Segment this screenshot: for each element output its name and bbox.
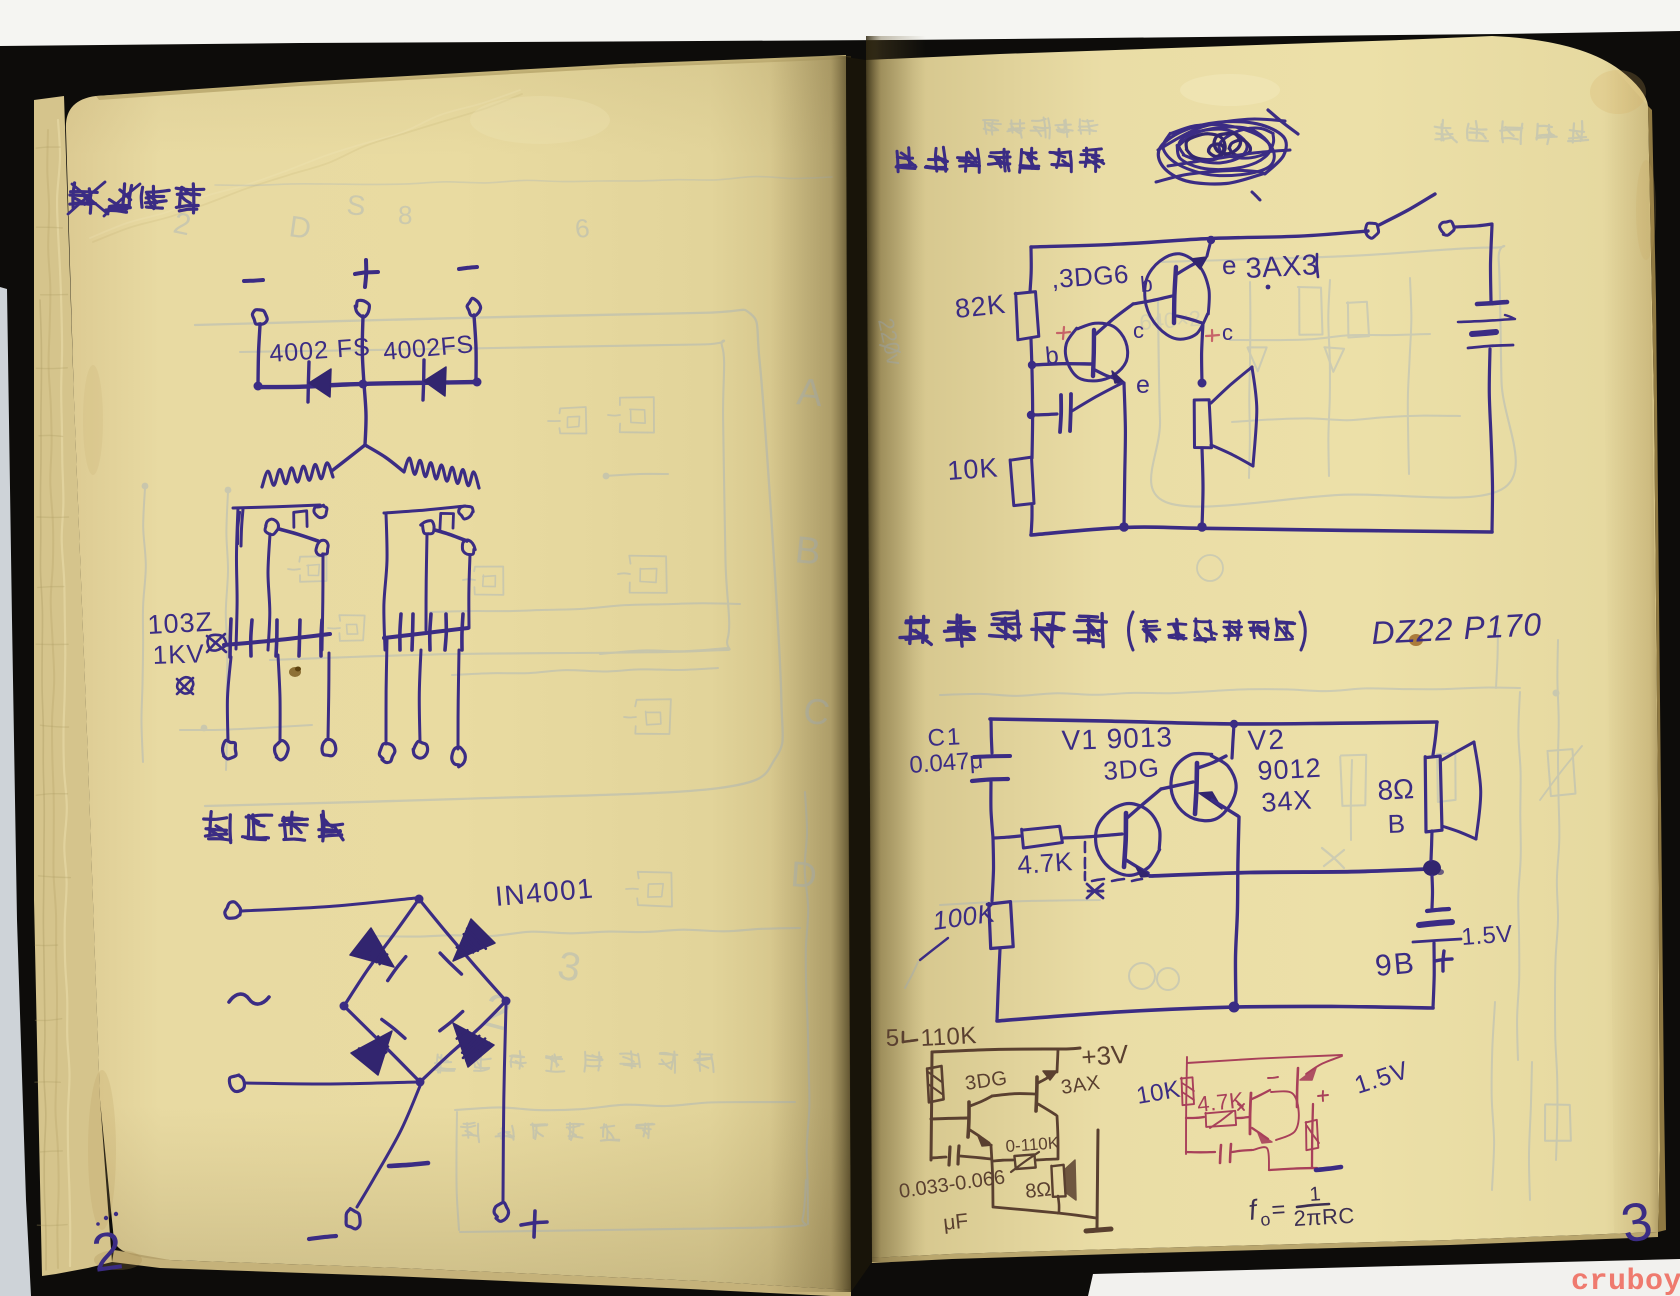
svg-text:e: e: [1222, 250, 1236, 280]
svg-text:5: 5: [885, 1025, 899, 1052]
svg-text:b: b: [1139, 271, 1153, 297]
svg-text:B: B: [793, 529, 823, 573]
svg-text:e: e: [1136, 371, 1150, 399]
svg-text:8Ω: 8Ω: [1024, 1178, 1052, 1203]
svg-text:9012: 9012: [1257, 753, 1323, 786]
svg-text:=: =: [1271, 1196, 1287, 1224]
svg-text:0-110K: 0-110K: [1005, 1133, 1060, 1156]
svg-text:b: b: [1044, 342, 1060, 370]
svg-text:cruboy: cruboy: [1571, 1265, 1680, 1296]
svg-text:V1 9013: V1 9013: [1061, 721, 1173, 756]
svg-text:A: A: [795, 371, 825, 415]
svg-text:B: B: [1387, 808, 1405, 839]
svg-text:8: 8: [398, 200, 412, 230]
svg-text:34X: 34X: [1260, 784, 1313, 817]
svg-text:1KV: 1KV: [152, 638, 205, 670]
svg-text:1.5V: 1.5V: [1461, 920, 1514, 951]
svg-text:0.047μ: 0.047μ: [909, 747, 985, 779]
svg-text:c: c: [1222, 320, 1233, 345]
svg-text:4.7K: 4.7K: [1016, 846, 1074, 880]
svg-text:82K: 82K: [953, 289, 1007, 324]
svg-text:o: o: [1259, 1209, 1271, 1230]
svg-text:D: D: [789, 853, 818, 896]
svg-text:110K: 110K: [920, 1022, 978, 1052]
svg-text:,3DG6: ,3DG6: [1050, 259, 1130, 294]
svg-text:103Z: 103Z: [147, 607, 214, 640]
svg-text:D: D: [287, 210, 313, 246]
svg-text:+3V: +3V: [1080, 1039, 1130, 1072]
svg-text:3AX3: 3AX3: [1245, 249, 1320, 285]
svg-text:3DG: 3DG: [1102, 752, 1160, 786]
svg-text:1: 1: [1309, 1183, 1322, 1206]
svg-text:8Ω: 8Ω: [1377, 773, 1415, 806]
svg-text:2πRC: 2πRC: [1293, 1203, 1355, 1231]
svg-text:S: S: [345, 189, 366, 222]
svg-text:10K: 10K: [946, 452, 999, 485]
svg-text:μF: μF: [942, 1209, 969, 1234]
svg-text:V2: V2: [1247, 724, 1286, 756]
svg-text:c: c: [1133, 318, 1144, 343]
svg-text:9B: 9B: [1374, 947, 1417, 983]
